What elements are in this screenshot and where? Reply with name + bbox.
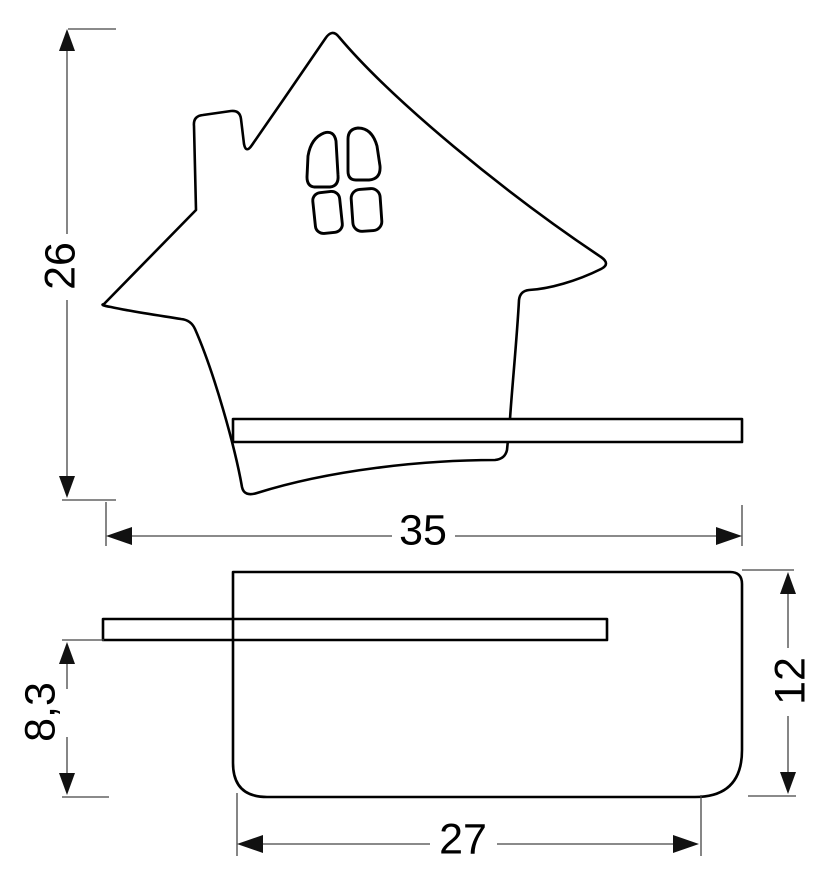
drawing-linework <box>0 0 828 886</box>
arrow-right <box>716 527 742 545</box>
arrow-up <box>59 29 75 51</box>
arrow-up <box>59 642 75 664</box>
shelf-front-view <box>233 419 742 442</box>
window-pane-top-left <box>307 132 338 187</box>
window-pane-bottom-left <box>312 191 343 235</box>
dimension-value-side-bottom-width: 27 <box>439 819 487 862</box>
dimension-value-front-width: 35 <box>399 510 447 553</box>
dimension-value-front-height: 26 <box>40 242 83 290</box>
front-view <box>103 33 742 494</box>
arrow-left <box>237 835 263 853</box>
arrow-up <box>780 572 796 594</box>
arrow-down <box>59 476 75 498</box>
side-body <box>233 572 742 797</box>
side-view <box>103 572 742 797</box>
arrow-left <box>106 527 132 545</box>
window-pane-top-right <box>348 128 380 180</box>
arrow-right <box>673 835 699 853</box>
technical-drawing-canvas: 26 35 8,3 12 27 <box>0 0 828 886</box>
dimension-shelf-to-bottom <box>59 640 109 797</box>
arrow-down <box>780 772 796 794</box>
window-pane-bottom-right <box>351 188 383 232</box>
dimension-value-side-height: 12 <box>770 657 813 705</box>
dimension-value-shelf-to-bottom: 8,3 <box>20 682 63 742</box>
arrow-down <box>59 773 75 795</box>
